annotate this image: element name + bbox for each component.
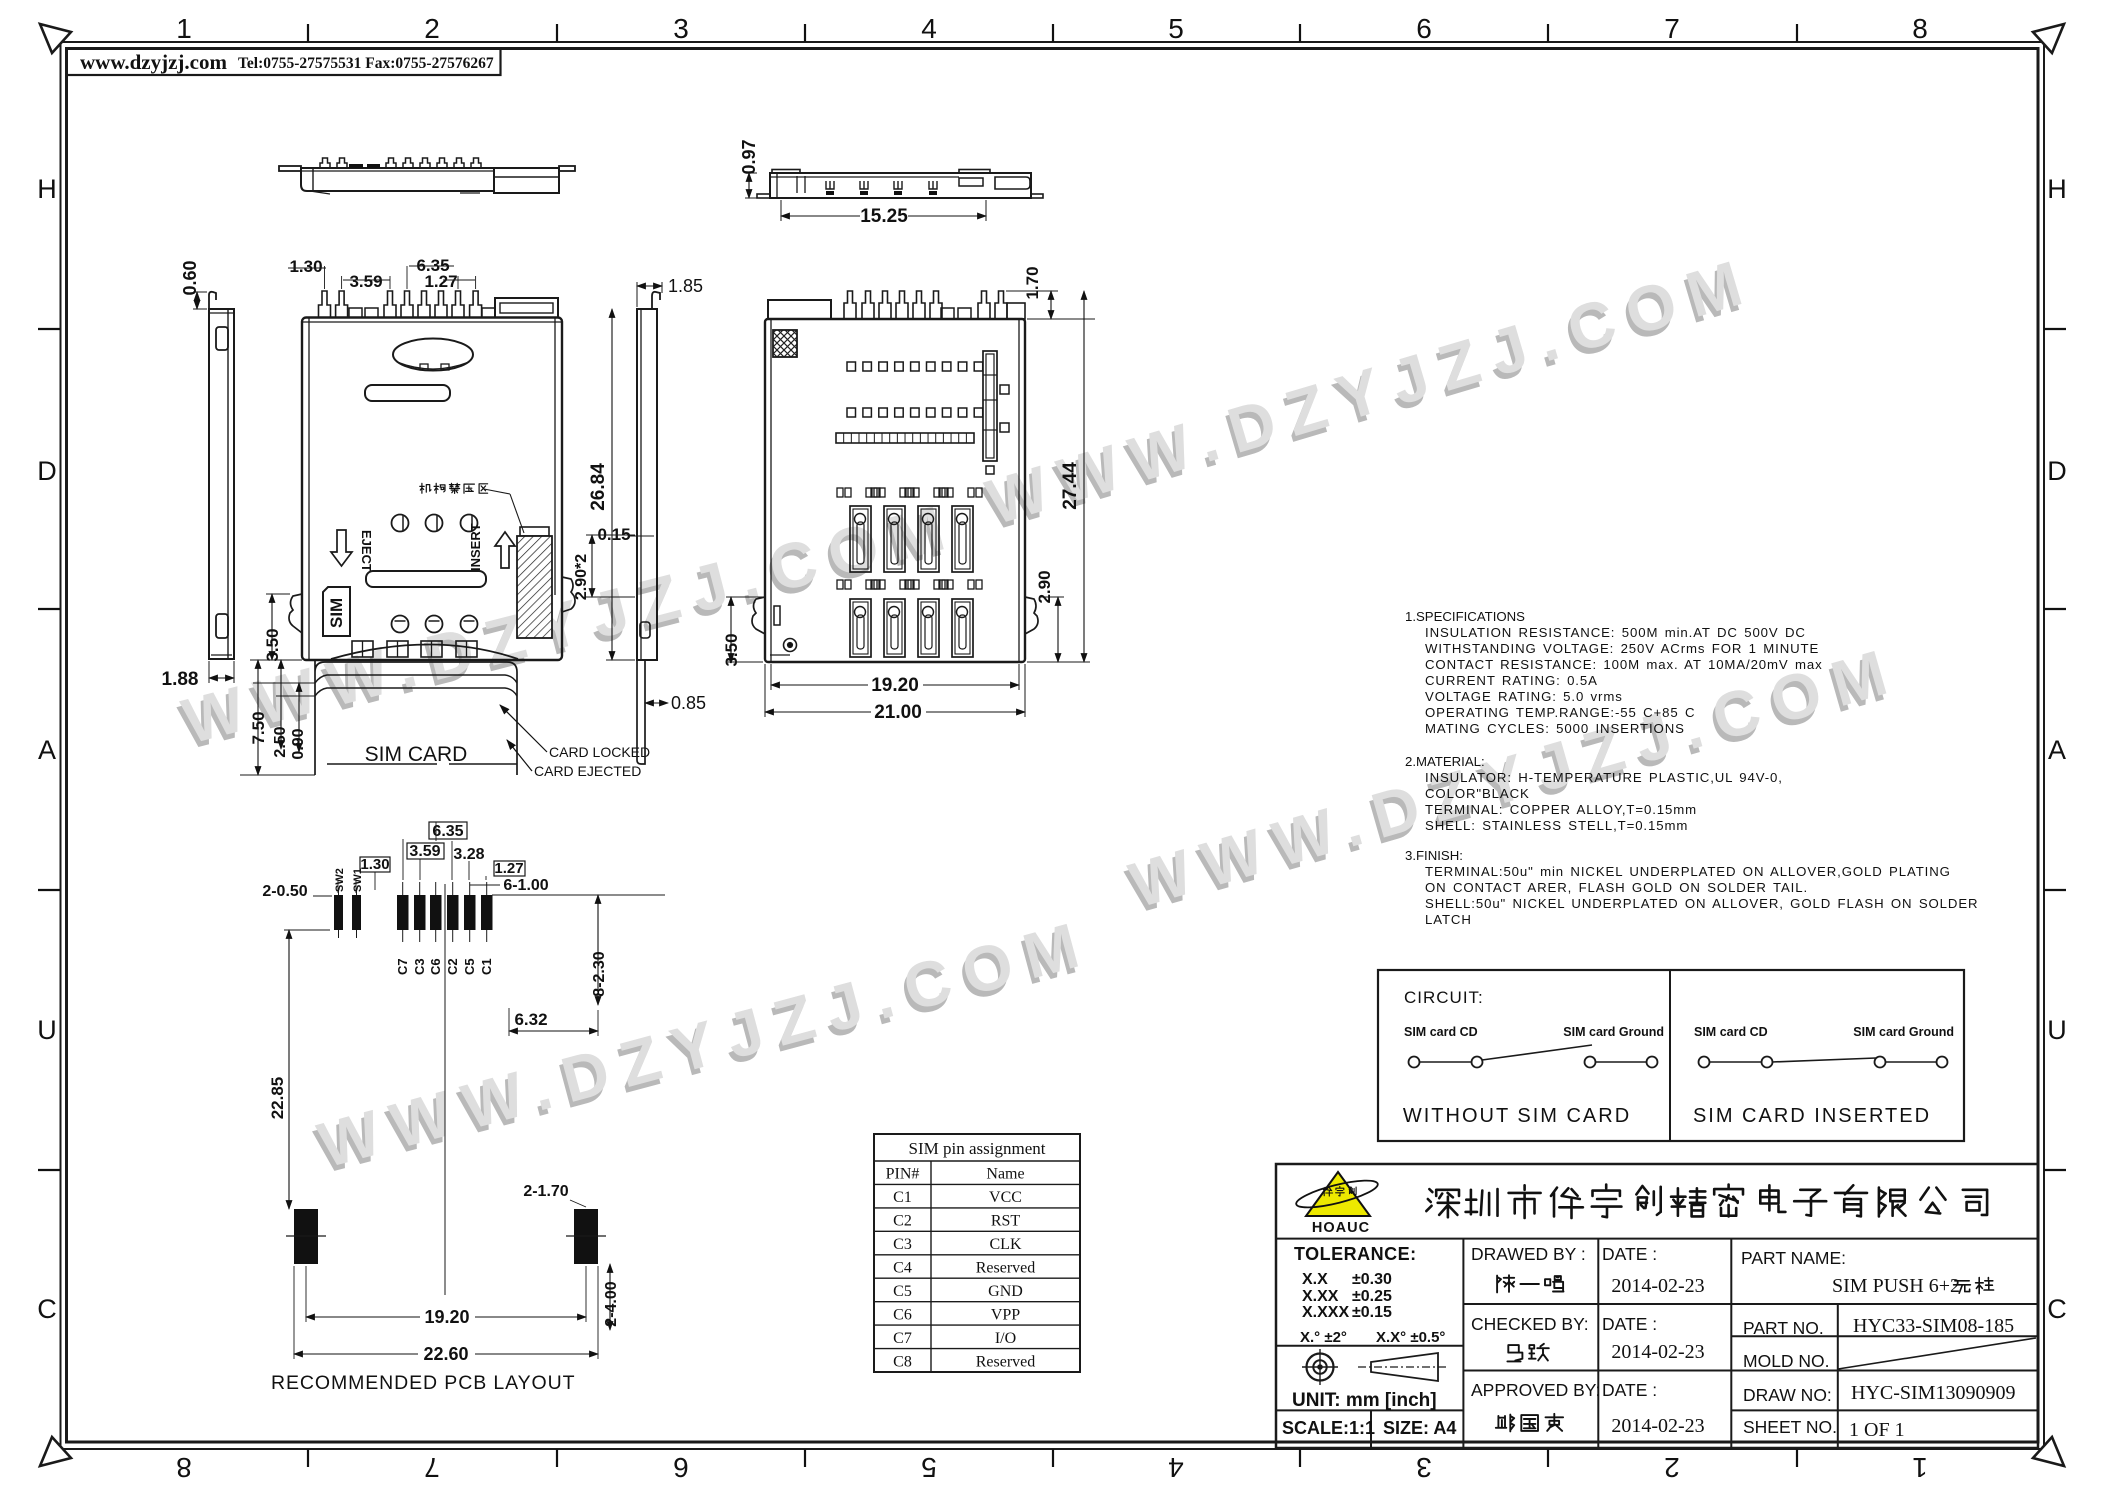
- svg-text:SIM card Ground: SIM card Ground: [1563, 1025, 1664, 1039]
- svg-text:HYC-SIM13090909: HYC-SIM13090909: [1851, 1382, 2015, 1404]
- svg-text:C6: C6: [893, 1306, 912, 1323]
- svg-text:DATE :: DATE :: [1602, 1244, 1657, 1264]
- svg-text:INSULATION RESISTANCE: 500M: INSULATION RESISTANCE: 500M min.AT DC 50…: [1425, 625, 1806, 640]
- svg-text:2.MATERIAL:: 2.MATERIAL:: [1405, 754, 1485, 769]
- svg-text:1.30: 1.30: [289, 257, 322, 276]
- svg-text:GND: GND: [988, 1283, 1023, 1300]
- svg-text:OPERATING TEMP.RANGE:-55 C+8: OPERATING TEMP.RANGE:-55 C+85 C: [1425, 705, 1695, 720]
- svg-text:C7: C7: [893, 1330, 912, 1347]
- svg-text:H: H: [2047, 174, 2067, 204]
- svg-text:INSERT: INSERT: [468, 523, 483, 571]
- svg-text:UNIT: mm [inch]: UNIT: mm [inch]: [1292, 1390, 1437, 1411]
- svg-text:C5: C5: [462, 958, 477, 975]
- svg-text:VPP: VPP: [991, 1306, 1020, 1323]
- svg-text:SIM CARD INSERTED: SIM CARD INSERTED: [1693, 1105, 1931, 1127]
- svg-text:MOLD NO.: MOLD NO.: [1743, 1351, 1830, 1371]
- svg-text:APPROVED BY:: APPROVED BY:: [1471, 1380, 1600, 1400]
- svg-text:3.FINISH:: 3.FINISH:: [1405, 848, 1463, 863]
- svg-text:C1: C1: [479, 958, 494, 975]
- svg-text:15.25: 15.25: [860, 206, 908, 227]
- svg-text:26.84: 26.84: [588, 463, 609, 511]
- svg-text:1.88: 1.88: [162, 669, 199, 690]
- svg-text:C: C: [37, 1294, 57, 1324]
- svg-text:COLOR"BLACK: COLOR"BLACK: [1425, 786, 1530, 801]
- svg-text:5: 5: [1168, 13, 1184, 44]
- svg-text:DRAW NO:: DRAW NO:: [1743, 1385, 1832, 1405]
- svg-text:TERMINAL:50u" min NICKEL UN: TERMINAL:50u" min NICKEL UNDERPLATED ON …: [1425, 864, 1951, 879]
- svg-text:CONTACT RESISTANCE: 100M ma: CONTACT RESISTANCE: 100M max. AT 10MA/20…: [1425, 657, 1823, 672]
- svg-text:1: 1: [176, 13, 192, 44]
- svg-text:SIM pin assignment: SIM pin assignment: [909, 1139, 1046, 1158]
- svg-text:19.20: 19.20: [871, 675, 919, 696]
- svg-text:2: 2: [424, 13, 440, 44]
- svg-text:±0.15: ±0.15: [1352, 1304, 1392, 1321]
- svg-text:SCALE:1:1: SCALE:1:1: [1282, 1418, 1375, 1438]
- svg-text:6: 6: [673, 1452, 689, 1483]
- svg-text:D: D: [2047, 456, 2067, 486]
- svg-text:1.SPECIFICATIONS: 1.SPECIFICATIONS: [1405, 609, 1525, 624]
- svg-text:HYC33-SIM08-185: HYC33-SIM08-185: [1853, 1315, 2014, 1337]
- svg-text:6.35: 6.35: [432, 823, 463, 840]
- svg-text:C3: C3: [893, 1236, 912, 1253]
- svg-text:6-1.00: 6-1.00: [503, 877, 548, 894]
- svg-text:CLK: CLK: [990, 1236, 1022, 1253]
- svg-text:PIN#: PIN#: [886, 1166, 920, 1183]
- svg-text:4: 4: [921, 13, 937, 44]
- svg-text:3.50: 3.50: [263, 628, 282, 661]
- svg-text:7.50: 7.50: [249, 711, 268, 744]
- svg-text:7: 7: [424, 1452, 440, 1483]
- svg-text:2014-02-23: 2014-02-23: [1611, 1415, 1704, 1437]
- svg-text:VCC: VCC: [989, 1189, 1022, 1206]
- svg-text:21.00: 21.00: [874, 702, 922, 723]
- svg-text:C3: C3: [412, 958, 427, 975]
- svg-text:CIRCUIT:: CIRCUIT:: [1404, 988, 1484, 1007]
- svg-text:1.27: 1.27: [494, 860, 523, 877]
- svg-text:C1: C1: [893, 1189, 912, 1206]
- svg-text:WITHOUT SIM CARD: WITHOUT SIM CARD: [1403, 1105, 1631, 1127]
- svg-text:DATE :: DATE :: [1602, 1380, 1657, 1400]
- svg-text:2014-02-23: 2014-02-23: [1611, 1275, 1704, 1297]
- svg-text:3.28: 3.28: [453, 846, 484, 863]
- svg-text:HOAUC: HOAUC: [1312, 1220, 1370, 1236]
- svg-text:WWW.DZYJZJ.COM: WWW.DZYJZJ.COM: [175, 488, 964, 757]
- svg-text:RECOMMENDED PCB LAYOUT: RECOMMENDED PCB LAYOUT: [271, 1372, 575, 1394]
- svg-text:SHEET NO.: SHEET NO.: [1743, 1417, 1837, 1437]
- svg-text:WWW.DZYJZJ.COM: WWW.DZYJZJ.COM: [979, 243, 1763, 538]
- svg-text:TOLERANCE:: TOLERANCE:: [1294, 1244, 1417, 1264]
- svg-text:ON CONTACT ARER, FLASH GOL: ON CONTACT ARER, FLASH GOLD ON SOLDER TA…: [1425, 880, 1808, 895]
- svg-text:C4: C4: [893, 1260, 912, 1277]
- svg-text:LATCH: LATCH: [1425, 912, 1472, 927]
- svg-text:SIM PUSH 6+2: SIM PUSH 6+2: [1832, 1275, 1960, 1297]
- svg-text:PART NAME:: PART NAME:: [1741, 1248, 1846, 1268]
- svg-text:3.59: 3.59: [349, 272, 382, 291]
- svg-text:2-1.70: 2-1.70: [523, 1183, 568, 1200]
- svg-text:Tel:0755-27575531 Fax:0755-27: Tel:0755-27575531 Fax:0755-27576267: [238, 55, 494, 72]
- svg-text:2.50: 2.50: [272, 726, 289, 757]
- svg-text:2.90*2: 2.90*2: [573, 554, 590, 600]
- svg-text:INSULATOR: H-TEMPERATURE PLA: INSULATOR: H-TEMPERATURE PLASTIC,UL 94V-…: [1425, 770, 1783, 785]
- svg-text:A: A: [2048, 735, 2066, 765]
- svg-text:Reserved: Reserved: [976, 1260, 1036, 1277]
- svg-text:0.85: 0.85: [671, 693, 706, 713]
- svg-text:C6: C6: [428, 958, 443, 975]
- svg-text:1: 1: [1912, 1452, 1928, 1483]
- svg-text:Name: Name: [986, 1166, 1024, 1183]
- svg-text:EJECT: EJECT: [359, 530, 374, 572]
- svg-text:H: H: [37, 174, 57, 204]
- svg-text:SIM CARD: SIM CARD: [365, 743, 468, 766]
- svg-text:8: 8: [1912, 13, 1928, 44]
- svg-text:2-0.50: 2-0.50: [262, 883, 307, 900]
- svg-text:4: 4: [1168, 1452, 1184, 1483]
- svg-text:1.27: 1.27: [424, 272, 457, 291]
- svg-text:I/O: I/O: [995, 1330, 1016, 1347]
- svg-text:1.70: 1.70: [1023, 266, 1042, 299]
- svg-text:3: 3: [1416, 1452, 1432, 1483]
- svg-text:RST: RST: [991, 1213, 1021, 1230]
- svg-text:±0.25: ±0.25: [1352, 1288, 1392, 1305]
- svg-text:6: 6: [1416, 13, 1432, 44]
- svg-text:C2: C2: [445, 958, 460, 975]
- svg-text:SIZE: A4: SIZE: A4: [1383, 1418, 1456, 1438]
- svg-text:22.60: 22.60: [423, 1344, 468, 1364]
- svg-text:D: D: [37, 456, 57, 486]
- svg-text:8: 8: [176, 1452, 192, 1483]
- svg-text:27.44: 27.44: [1060, 462, 1081, 510]
- svg-text:8-2.30: 8-2.30: [591, 951, 608, 996]
- svg-text:DATE :: DATE :: [1602, 1314, 1657, 1334]
- svg-text:DRAWED BY :: DRAWED BY :: [1471, 1244, 1586, 1264]
- svg-text:SW2: SW2: [334, 868, 346, 892]
- svg-text:X.X° ±0.5°: X.X° ±0.5°: [1376, 1329, 1445, 1346]
- svg-text:C7: C7: [395, 958, 410, 975]
- svg-text:PART NO.: PART NO.: [1743, 1318, 1824, 1338]
- svg-text:CARD LOCKED: CARD LOCKED: [549, 744, 650, 760]
- svg-text:CHECKED BY:: CHECKED BY:: [1471, 1314, 1589, 1334]
- svg-text:0.90: 0.90: [290, 728, 307, 759]
- svg-text:2-4.00: 2-4.00: [603, 1281, 620, 1326]
- svg-text:A: A: [38, 735, 56, 765]
- svg-text:SHELL:50u" NICKEL UNDERPLATE: SHELL:50u" NICKEL UNDERPLATED ON ALLOVER…: [1425, 896, 1978, 911]
- svg-text:6.32: 6.32: [514, 1010, 547, 1029]
- svg-text:MATING CYCLES: 5000 INSERTI: MATING CYCLES: 5000 INSERTIONS: [1425, 721, 1685, 736]
- svg-text:X.° ±2°: X.° ±2°: [1300, 1329, 1347, 1346]
- svg-text:WITHSTANDING VOLTAGE: 250V: WITHSTANDING VOLTAGE: 250V ACrms FOR 1 M…: [1425, 641, 1819, 656]
- svg-text:SIM: SIM: [327, 598, 346, 628]
- svg-text:3: 3: [673, 13, 689, 44]
- svg-text:C8: C8: [893, 1353, 912, 1370]
- svg-text:0.97: 0.97: [739, 139, 759, 174]
- svg-text:2014-02-23: 2014-02-23: [1611, 1341, 1704, 1363]
- svg-text:Reserved: Reserved: [976, 1353, 1036, 1370]
- svg-text:U: U: [37, 1015, 57, 1045]
- svg-text:VOLTAGE RATING: 5.0 vrms: VOLTAGE RATING: 5.0 vrms: [1425, 689, 1623, 704]
- svg-text:C5: C5: [893, 1283, 912, 1300]
- svg-text:X.X: X.X: [1302, 1271, 1328, 1288]
- svg-text:SIM card CD: SIM card CD: [1694, 1025, 1768, 1039]
- svg-text:1.85: 1.85: [668, 276, 703, 296]
- svg-text:U: U: [2047, 1015, 2067, 1045]
- svg-text:3.50: 3.50: [722, 633, 741, 666]
- svg-text:1.30: 1.30: [360, 856, 389, 873]
- svg-text:SHELL: STAINLESS STELL,T=0.1: SHELL: STAINLESS STELL,T=0.15mm: [1425, 818, 1688, 833]
- svg-text:22.85: 22.85: [268, 1077, 287, 1120]
- svg-text:CARD EJECTED: CARD EJECTED: [534, 763, 641, 779]
- svg-text:2.90: 2.90: [1035, 570, 1054, 603]
- svg-text:2: 2: [1664, 1452, 1680, 1483]
- svg-text:X.XXX: X.XXX: [1302, 1304, 1349, 1321]
- svg-text:CURRENT RATING: 0.5A: CURRENT RATING: 0.5A: [1425, 673, 1598, 688]
- svg-text:3.59: 3.59: [409, 843, 440, 860]
- svg-text:7: 7: [1664, 13, 1680, 44]
- svg-text:5: 5: [921, 1452, 937, 1483]
- svg-text:SIM card CD: SIM card CD: [1404, 1025, 1478, 1039]
- svg-text:19.20: 19.20: [424, 1307, 469, 1327]
- svg-text:TERMINAL: COPPER ALLOY,T=0.1: TERMINAL: COPPER ALLOY,T=0.15mm: [1425, 802, 1697, 817]
- svg-text:X.XX: X.XX: [1302, 1288, 1339, 1305]
- svg-text:±0.30: ±0.30: [1352, 1271, 1392, 1288]
- svg-text:0.60: 0.60: [180, 260, 200, 295]
- svg-text:www.dzyjzj.com: www.dzyjzj.com: [80, 50, 227, 74]
- svg-text:SIM card Ground: SIM card Ground: [1853, 1025, 1954, 1039]
- svg-text:1 OF 1: 1 OF 1: [1849, 1419, 1905, 1441]
- svg-text:C2: C2: [893, 1213, 912, 1230]
- svg-text:C: C: [2047, 1294, 2067, 1324]
